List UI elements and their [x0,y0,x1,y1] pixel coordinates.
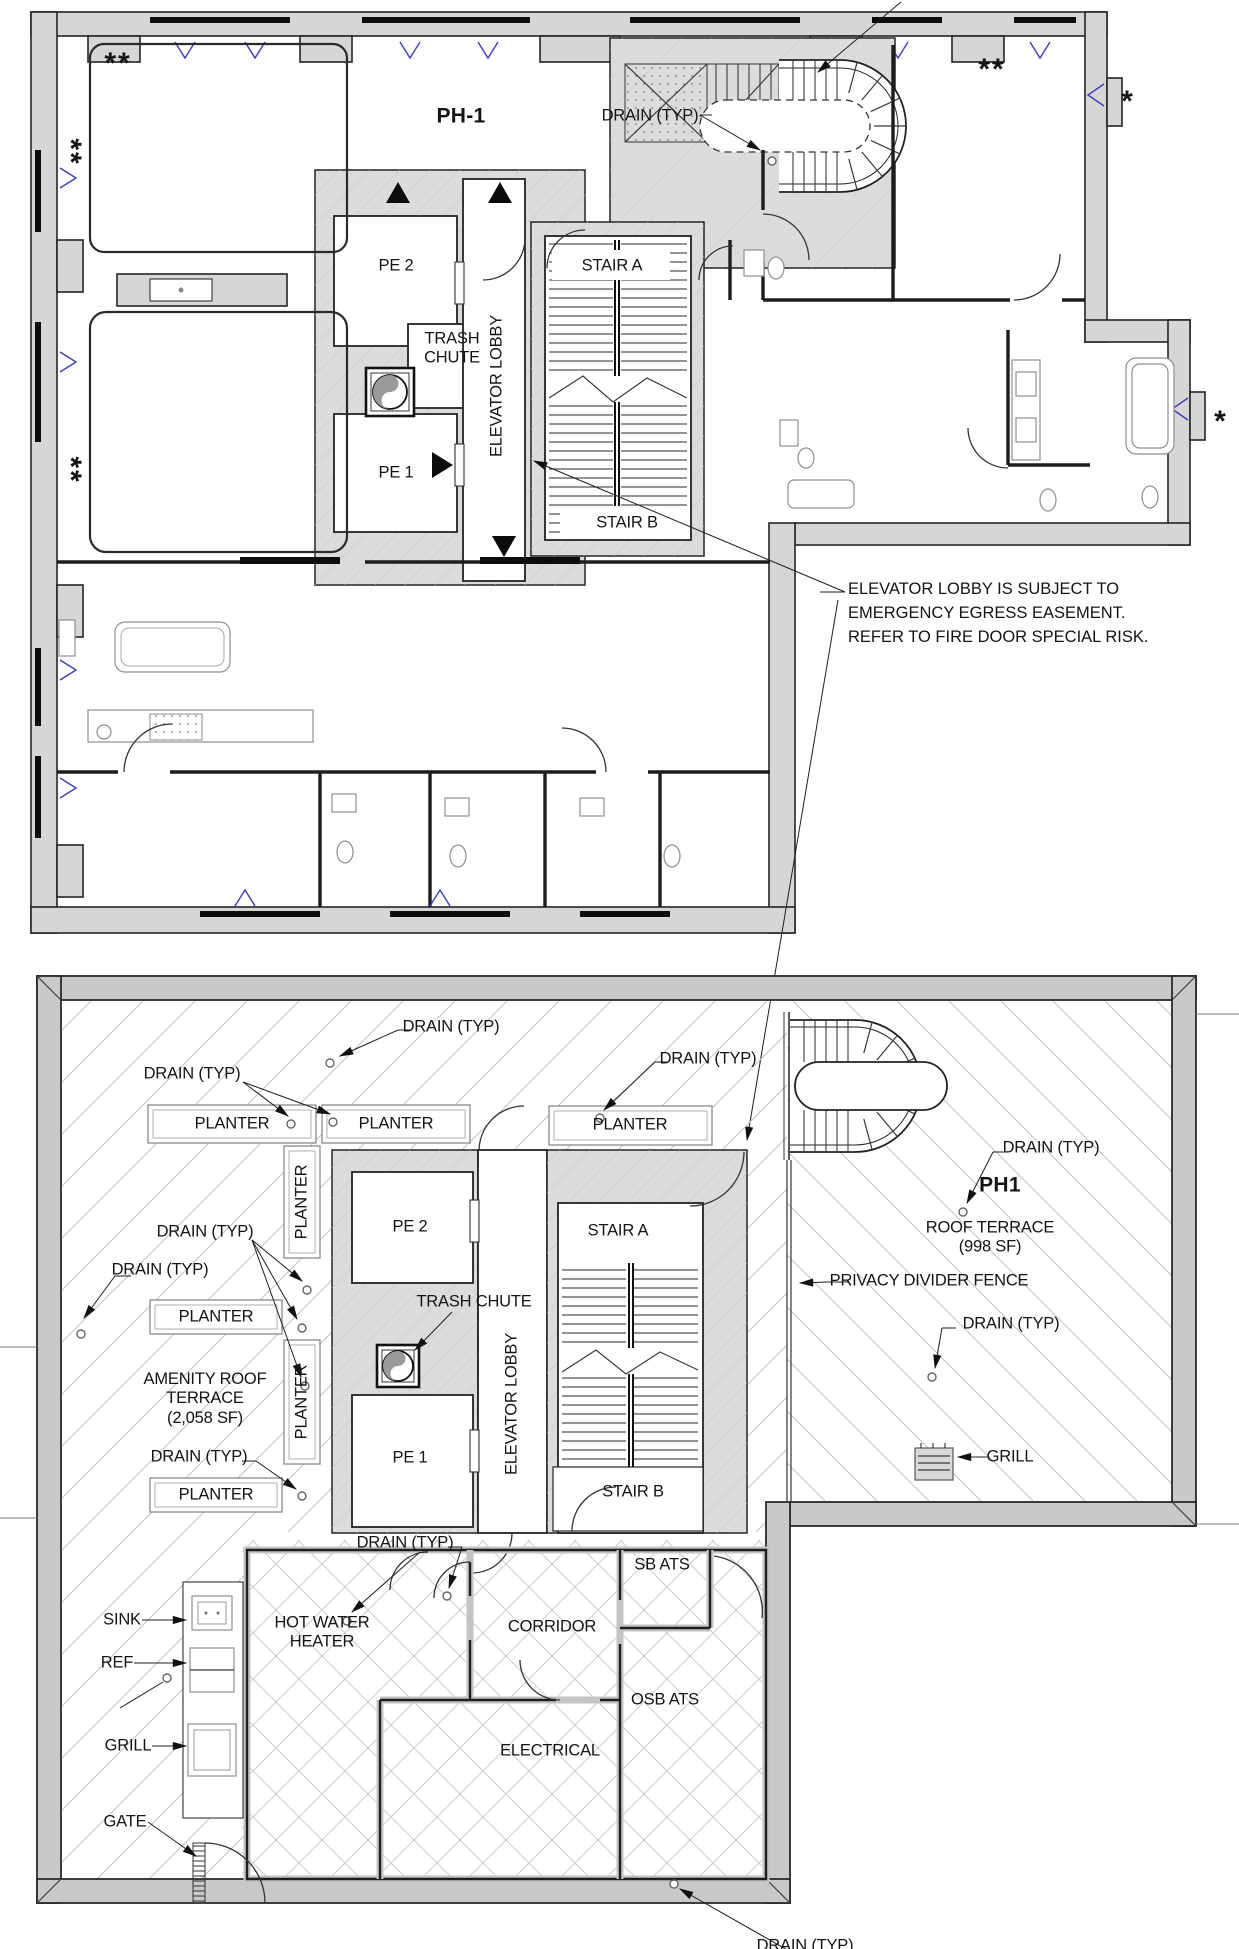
label-drain-typ: DRAIN (TYP) [144,1064,241,1083]
label-roof-terrace: ROOF TERRACE(998 SF) [926,1219,1054,1258]
label-drain-typ: DRAIN (TYP) [660,1049,757,1068]
label-stair-a: STAIR A [582,256,643,275]
label-privacy-divider-fence: PRIVACY DIVIDER FENCE [830,1271,1029,1290]
amenity-line3: (2,058 SF) [144,1409,267,1428]
roof-trash-chute-icon [377,1345,419,1387]
gate-leaf [193,1843,205,1903]
label-planter: PLANTER [195,1114,270,1133]
double-asterisk-mark: ** [61,138,79,165]
label-planter-vertical: PLANTER [292,1365,311,1440]
label-pe1: PE 1 [379,463,414,482]
label-drain-typ: DRAIN (TYP) [403,1017,500,1036]
label-sink: SINK [103,1610,141,1629]
label-stair-b: STAIR B [596,513,658,532]
asterisk-mark: * [1214,413,1228,431]
label-osb-ats: OSB ATS [631,1690,699,1709]
label-elevator-lobby: ELEVATOR LOBBY [487,315,506,457]
label-trash-chute: TRASHCHUTE [424,330,480,369]
roof-terrace-line2: (998 SF) [926,1238,1054,1257]
plan-drawing [0,0,1239,1949]
label-ref: REF [101,1653,133,1672]
label-pe1: PE 1 [393,1448,428,1467]
easement-note-line3: REFER TO FIRE DOOR SPECIAL RISK. [848,626,1148,650]
easement-note-line2: EMERGENCY EGRESS EASEMENT. [848,602,1148,626]
label-grill: GRILL [987,1447,1034,1466]
roof-unit-label-ph1: PH1 [979,1174,1021,1199]
label-planter: PLANTER [593,1115,668,1134]
label-amenity-roof-terrace: AMENITY ROOFTERRACE(2,058 SF) [144,1370,267,1428]
floor-plan-sheet: PH-1 DRAIN (TYP) PE 2 PE 1 STAIR A STAIR… [0,0,1239,1949]
amenity-line1: AMENITY ROOF [144,1370,267,1389]
label-gate: GATE [104,1812,147,1831]
label-corridor: CORRIDOR [508,1617,596,1636]
trash-line1: TRASH [424,330,480,349]
roof-terrace-line1: ROOF TERRACE [926,1219,1054,1238]
label-drain-typ: DRAIN (TYP) [963,1314,1060,1333]
label-trash-chute: TRASH CHUTE [416,1292,531,1311]
label-electrical: ELECTRICAL [500,1741,600,1760]
asterisk-mark: * [1121,93,1135,111]
label-planter: PLANTER [179,1485,254,1504]
label-drain-typ: DRAIN (TYP) [112,1260,209,1279]
label-drain-typ: DRAIN (TYP) [157,1222,254,1241]
ph1-floor-plan [31,2,1205,1140]
label-drain-typ-clipped: DRAIN (TYP) [757,1936,854,1949]
trash-line2: CHUTE [424,349,480,368]
label-grill: GRILL [105,1736,152,1755]
label-stair-b: STAIR B [602,1482,664,1501]
label-drain-typ: DRAIN (TYP) [151,1447,248,1466]
label-pe2: PE 2 [393,1217,428,1236]
hot-water-line1: HOT WATER [274,1614,369,1633]
label-drain-typ: DRAIN (TYP) [1003,1138,1100,1157]
trash-chute-icon [366,368,414,416]
label-pe2: PE 2 [379,256,414,275]
roof-grill-icon [915,1443,953,1480]
label-planter-vertical: PLANTER [292,1165,311,1240]
label-elevator-lobby: ELEVATOR LOBBY [502,1333,521,1475]
label-drain-typ: DRAIN (TYP) [602,106,699,125]
bathroom-fixtures [744,250,1174,511]
label-planter: PLANTER [359,1114,434,1133]
double-asterisk-mark: ** [978,61,1005,79]
ph1-plan-title: PH-1 [436,105,485,130]
amenity-line2: TERRACE [144,1389,267,1408]
label-sb-ats: SB ATS [634,1555,689,1574]
label-hot-water-heater: HOT WATERHEATER [274,1614,369,1653]
double-asterisk-mark: ** [61,456,79,483]
label-drain-typ: DRAIN (TYP) [357,1533,454,1552]
easement-note: ELEVATOR LOBBY IS SUBJECT TO EMERGENCY E… [848,578,1148,650]
hot-water-line2: HEATER [274,1633,369,1652]
easement-note-line1: ELEVATOR LOBBY IS SUBJECT TO [848,578,1148,602]
label-stair-a: STAIR A [588,1221,649,1240]
double-asterisk-mark: ** [104,55,131,73]
label-planter: PLANTER [179,1307,254,1326]
